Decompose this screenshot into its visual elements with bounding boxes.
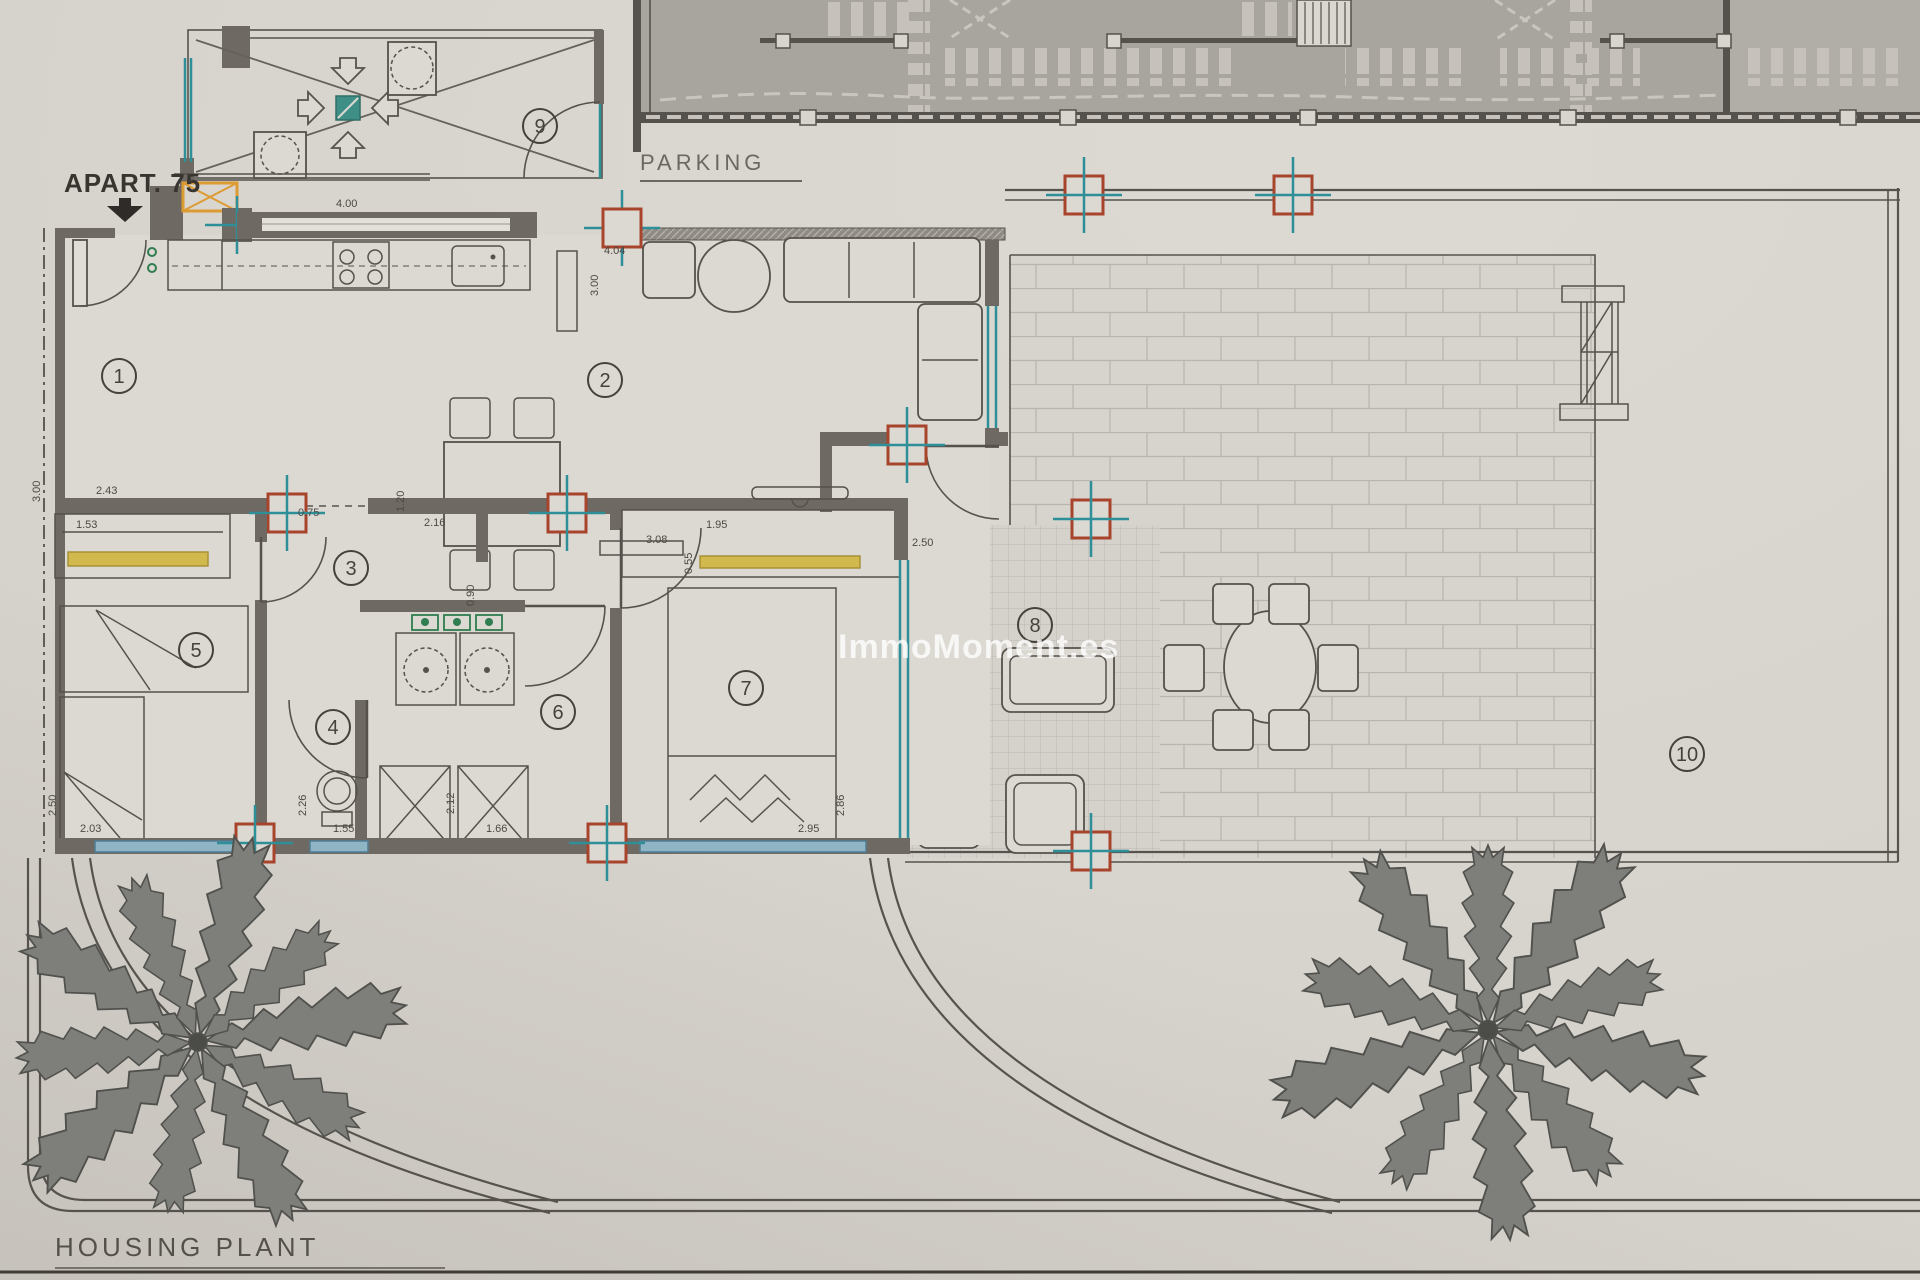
washing-machine — [254, 132, 306, 178]
apartment-number-label: APART. 75 — [64, 168, 201, 198]
round-table — [698, 240, 770, 312]
floor-plan-page: PARKING — [0, 0, 1920, 1280]
svg-text:2: 2 — [599, 370, 610, 392]
dimension-label: 2.50 — [912, 537, 933, 549]
dimension-label: 2.95 — [798, 823, 819, 835]
svg-text:10: 10 — [1676, 744, 1698, 766]
dimension-label: 4.04 — [604, 245, 625, 257]
dimension-label: 3.00 — [31, 481, 43, 502]
dimension-label: 0.90 — [465, 585, 477, 606]
dimension-label: 2.26 — [297, 795, 309, 816]
closet-rail — [68, 552, 208, 566]
svg-text:6: 6 — [552, 702, 563, 724]
pillar — [603, 209, 641, 247]
svg-text:5: 5 — [190, 640, 201, 662]
floor-plan-drawing: PARKING — [0, 0, 1920, 1280]
dimension-label: 4.00 — [336, 198, 357, 210]
dimension-label: 1.95 — [706, 519, 727, 531]
dimension-label: 2.16 — [424, 517, 445, 529]
corner-sofa — [918, 304, 982, 420]
dimension-label: 2.86 — [835, 795, 847, 816]
armchair — [643, 242, 695, 298]
svg-text:3: 3 — [345, 558, 356, 580]
entry-door-leaf — [73, 240, 87, 306]
dimension-label: 2.12 — [445, 793, 457, 814]
dimension-label: 1.53 — [76, 519, 97, 531]
boiler — [388, 42, 436, 95]
parking-left-wall — [633, 0, 641, 152]
svg-text:7: 7 — [740, 678, 751, 700]
dimension-label: 1.66 — [486, 823, 507, 835]
dimension-label: 3.00 — [589, 275, 601, 296]
window — [640, 841, 866, 852]
window — [310, 841, 368, 852]
dimension-label: 0.75 — [298, 507, 319, 519]
dining-table — [444, 442, 560, 546]
dimension-label: 1.20 — [395, 491, 407, 512]
terrace-brick-tiles-upper — [1010, 255, 1595, 525]
sofa — [784, 238, 980, 302]
closet-rail — [700, 556, 860, 568]
dimension-label: 1.55 — [333, 823, 354, 835]
parking-label: PARKING — [640, 150, 765, 175]
dimension-label: 2.50 — [47, 795, 59, 816]
plan-title: HOUSING PLANT — [55, 1232, 319, 1262]
terrace-brick-tiles-lower — [1160, 525, 1595, 858]
svg-text:9: 9 — [534, 116, 545, 138]
dimension-label: 0.55 — [683, 553, 695, 574]
dimension-label: 2.03 — [80, 823, 101, 835]
svg-text:1: 1 — [113, 366, 124, 388]
dimension-label: 3.08 — [646, 534, 667, 546]
dimension-label: 2.43 — [96, 485, 117, 497]
watermark-text: ImmoMoment.es — [838, 628, 1119, 666]
svg-text:4: 4 — [327, 717, 338, 739]
